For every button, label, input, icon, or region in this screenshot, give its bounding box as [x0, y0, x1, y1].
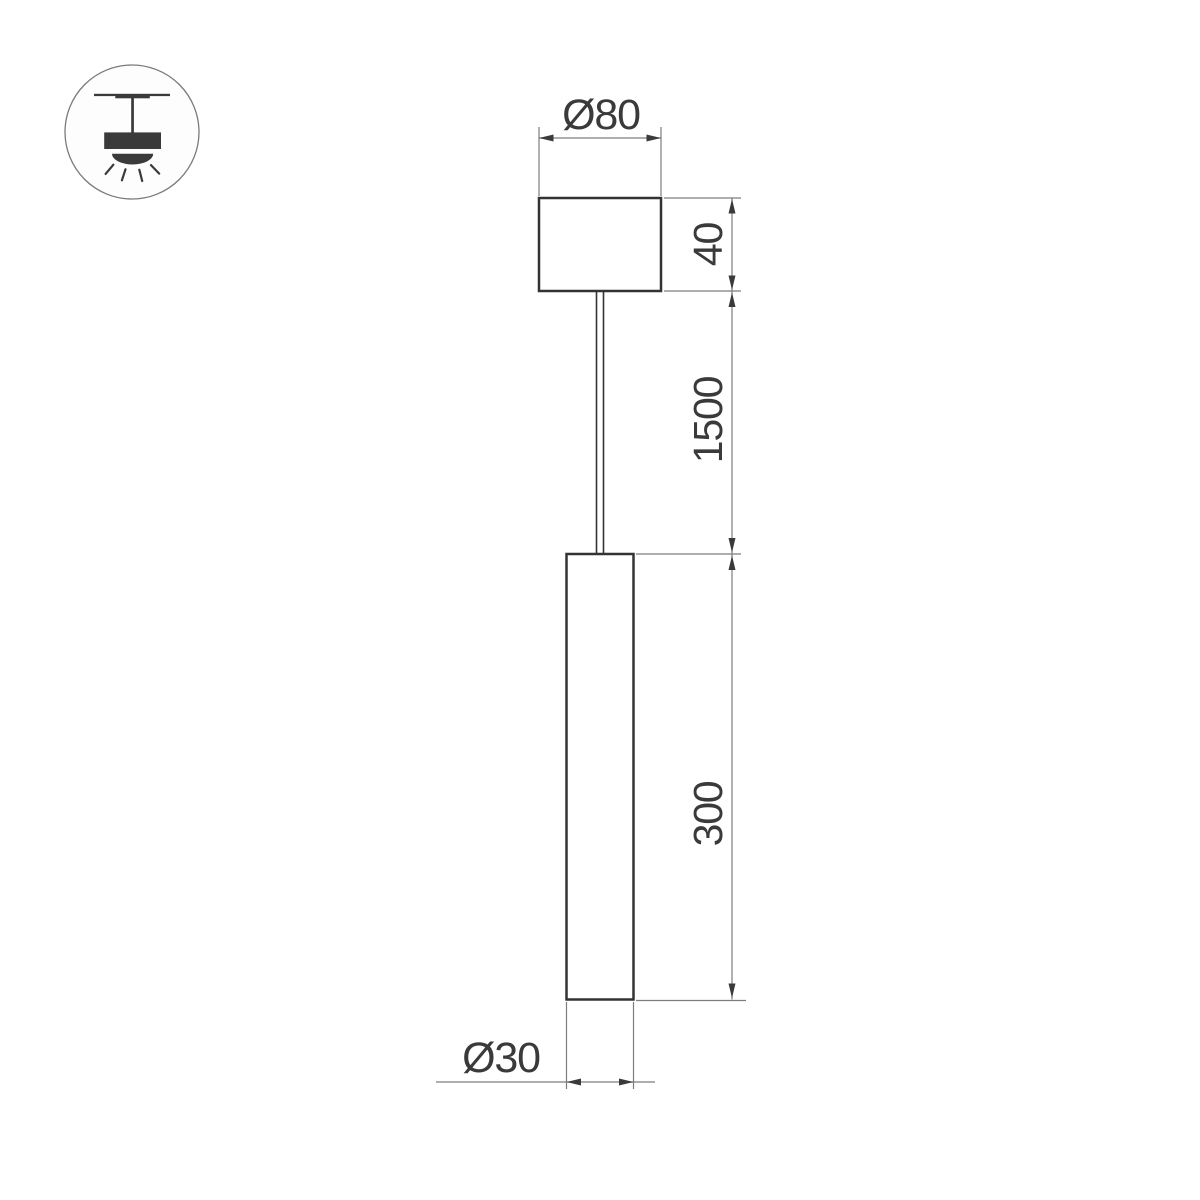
- svg-text:300: 300: [685, 781, 731, 846]
- svg-text:Ø30: Ø30: [462, 1034, 540, 1082]
- svg-text:40: 40: [685, 223, 731, 267]
- svg-text:Ø80: Ø80: [562, 91, 640, 139]
- svg-text:1500: 1500: [685, 376, 731, 463]
